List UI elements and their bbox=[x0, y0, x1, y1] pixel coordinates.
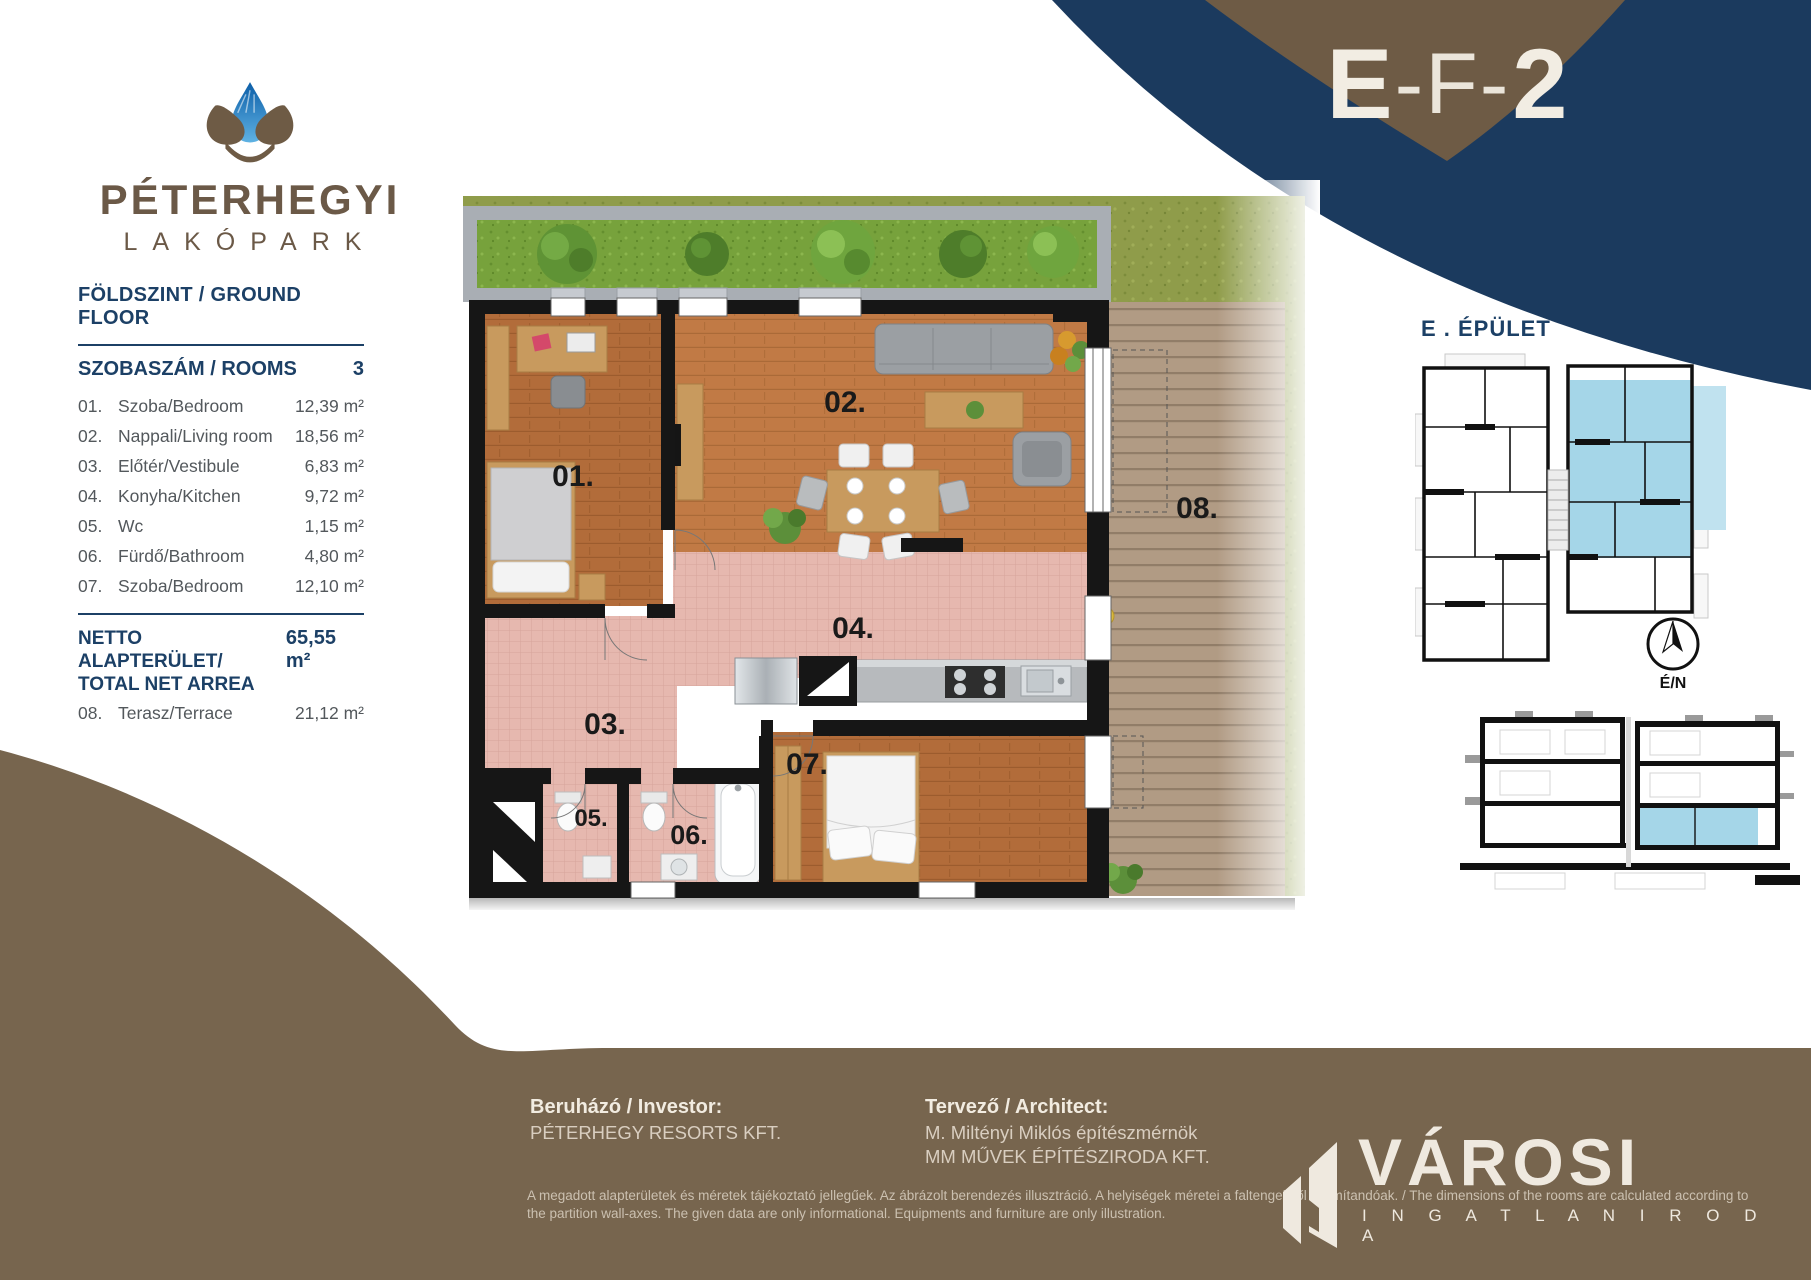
room-num: 04. bbox=[78, 481, 118, 511]
bush bbox=[1027, 226, 1079, 278]
bush bbox=[939, 230, 987, 278]
room02-label: 02. bbox=[824, 386, 866, 419]
room-area: 6,83 m² bbox=[305, 451, 364, 481]
unit-code-e: E bbox=[1327, 27, 1393, 141]
highlight-apartment bbox=[1570, 380, 1692, 558]
brochure-page: E -F- 2 PÉTERHEGYI LAKÓPARK FÖLDSZINT / … bbox=[0, 0, 1811, 1280]
unit-code-f: -F- bbox=[1393, 35, 1513, 134]
room-name: Nappali/Living room bbox=[118, 421, 273, 451]
logo: PÉTERHEGYI LAKÓPARK bbox=[85, 78, 415, 257]
investor-name: PÉTERHEGY RESORTS KFT. bbox=[530, 1122, 781, 1144]
rooms-header-label: SZOBASZÁM / ROOMS bbox=[78, 358, 297, 381]
architect-label: Tervező / Architect: bbox=[925, 1096, 1108, 1119]
room-num: 03. bbox=[78, 451, 118, 481]
room-row: 05. Wc 1,15 m² bbox=[78, 511, 364, 541]
unit-code-2: 2 bbox=[1512, 27, 1567, 141]
unit-code: E -F- 2 bbox=[1322, 26, 1572, 142]
room-area: 1,15 m² bbox=[305, 511, 364, 541]
agency-subtitle: I N G A T L A N I R O D A bbox=[1362, 1206, 1798, 1246]
room-row: 07. Szoba/Bedroom 12,10 m² bbox=[78, 571, 364, 601]
divider bbox=[78, 344, 364, 346]
room-row: 01. Szoba/Bedroom 12,39 m² bbox=[78, 391, 364, 421]
room-area: 18,56 m² bbox=[295, 421, 364, 451]
room-area: 4,80 m² bbox=[305, 541, 364, 571]
room-area: 12,39 m² bbox=[295, 391, 364, 421]
room-row: 02. Nappali/Living room 18,56 m² bbox=[78, 421, 364, 451]
floor-label: FÖLDSZINT / GROUND FLOOR bbox=[78, 284, 364, 330]
rooms-header: SZOBASZÁM / ROOMS 3 bbox=[78, 358, 364, 381]
room01-label: 01. bbox=[552, 460, 594, 493]
rooms-count: 3 bbox=[353, 358, 364, 381]
room08-label: 08. bbox=[1176, 492, 1218, 525]
room-name: Előtér/Vestibule bbox=[118, 451, 240, 481]
room-name: Konyha/Kitchen bbox=[118, 481, 241, 511]
room-row: 06. Fürdő/Bathroom 4,80 m² bbox=[78, 541, 364, 571]
agency-buildings-icon bbox=[1272, 1130, 1352, 1248]
room-num: 02. bbox=[78, 421, 118, 451]
room-row: 03. Előtér/Vestibule 6,83 m² bbox=[78, 451, 364, 481]
agency-logo: VÁROSI I N G A T L A N I R O D A bbox=[1258, 1122, 1798, 1272]
highlight-terrace bbox=[1692, 386, 1726, 530]
room-name: Wc bbox=[118, 511, 143, 541]
bush bbox=[811, 220, 875, 284]
agency-name: VÁROSI bbox=[1358, 1124, 1641, 1200]
room-num: 06. bbox=[78, 541, 118, 571]
building-label: E . ÉPÜLET bbox=[1421, 316, 1551, 342]
room-area: 9,72 m² bbox=[305, 481, 364, 511]
architect-line1: M. Miltényi Miklós építészmérnök bbox=[925, 1122, 1197, 1144]
room-row: 04. Konyha/Kitchen 9,72 m² bbox=[78, 481, 364, 511]
left-wing bbox=[1424, 368, 1548, 660]
room-name: Fürdő/Bathroom bbox=[118, 541, 244, 571]
disclaimer-line2: the partition wall-axes. The given data … bbox=[527, 1206, 1165, 1221]
room-name: Szoba/Bedroom bbox=[118, 571, 244, 601]
logo-subtitle: LAKÓPARK bbox=[85, 228, 415, 257]
architect-line2: MM MŰVEK ÉPÍTÉSZIRODA KFT. bbox=[925, 1146, 1210, 1168]
divider bbox=[78, 613, 364, 615]
room-num: 07. bbox=[78, 571, 118, 601]
logo-bird-icon bbox=[200, 78, 300, 166]
room-name: Szoba/Bedroom bbox=[118, 391, 244, 421]
room-num: 05. bbox=[78, 511, 118, 541]
bush bbox=[685, 232, 729, 276]
logo-title: PÉTERHEGYI bbox=[85, 176, 415, 224]
room-num: 01. bbox=[78, 391, 118, 421]
bush bbox=[537, 224, 597, 284]
investor-label: Beruházó / Investor: bbox=[530, 1096, 722, 1119]
room-area: 12,10 m² bbox=[295, 571, 364, 601]
